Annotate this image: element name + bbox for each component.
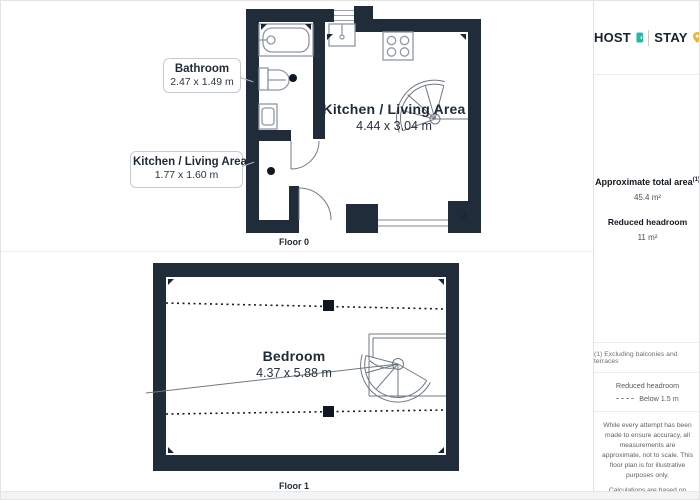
floorplan-canvas: Kitchen / Living Area 4.44 x 3.04 m Bath…: [1, 1, 593, 491]
callout-dims: 1.77 x 1.60 m: [133, 169, 240, 181]
bottom-strip: [1, 491, 700, 500]
footnote-marker: (1): [693, 177, 700, 183]
disclaimer-section: While every attempt has been made to ens…: [594, 411, 700, 491]
legend-section: Reduced headroom Below 1.5 m: [594, 372, 700, 411]
logo-host-text: HOST: [594, 30, 631, 45]
floor1-walls: [153, 263, 459, 471]
total-area-title-text: Approximate total area: [595, 177, 693, 187]
legend-title: Reduced headroom: [616, 381, 679, 390]
top-window: [334, 9, 354, 22]
floor1-label: Floor 1: [244, 481, 344, 491]
map-pin-icon: [693, 31, 700, 44]
logo-stay-text: STAY: [654, 30, 687, 45]
sidebar: HOST STAY Approximate total area(1) 45.4…: [593, 1, 700, 491]
reduced-headroom-title: Reduced headroom: [594, 217, 700, 227]
callout-bathroom: Bathroom 2.47 x 1.49 m: [163, 58, 241, 93]
bathroom-sink-icon: [259, 104, 277, 129]
floor0-label: Floor 0: [244, 237, 344, 247]
stove-icon: [383, 32, 413, 60]
callout-name: Bathroom: [166, 63, 238, 75]
disclaimer-text: While every attempt has been made to ens…: [602, 421, 693, 481]
section-divider: [1, 251, 593, 252]
callout-kitchen-living: Kitchen / Living Area 1.77 x 1.60 m: [130, 151, 243, 188]
spiral-staircase-icon: [397, 80, 468, 132]
floorplan-page: Kitchen / Living Area 4.44 x 3.04 m Bath…: [0, 0, 700, 500]
bathtub-icon: [259, 24, 313, 56]
total-area-title: Approximate total area(1): [594, 177, 700, 187]
toilet-icon: [259, 68, 289, 90]
logo-divider: [648, 30, 649, 46]
callout-name: Kitchen / Living Area: [133, 156, 240, 168]
legend-label: Below 1.5 m: [639, 394, 679, 403]
footnote-section: (1) Excluding balconies and terraces: [594, 342, 700, 372]
floor1-plan: [146, 258, 461, 476]
callout-dims: 2.47 x 1.49 m: [166, 76, 238, 88]
door-arc-bathroom: [291, 141, 319, 169]
legend-row: Below 1.5 m: [616, 394, 679, 403]
total-area-value: 45.4 m²: [594, 193, 700, 202]
footnote-text: (1) Excluding balconies and terraces: [594, 351, 700, 365]
host-stay-logo: HOST STAY: [594, 1, 700, 75]
floor0-plan: [243, 6, 483, 236]
kitchen-sink-icon: [329, 24, 355, 46]
door-icon: [636, 31, 644, 44]
post-marker: [323, 300, 334, 417]
bottom-window: [378, 216, 448, 233]
spiral-staircase-icon: [146, 334, 446, 402]
door-arc-entry: [299, 188, 331, 220]
area-summary: Approximate total area(1) 45.4 m² Reduce…: [594, 177, 700, 242]
reduced-headroom-dash-icon: [616, 398, 634, 399]
reduced-headroom-value: 11 m²: [594, 233, 700, 242]
